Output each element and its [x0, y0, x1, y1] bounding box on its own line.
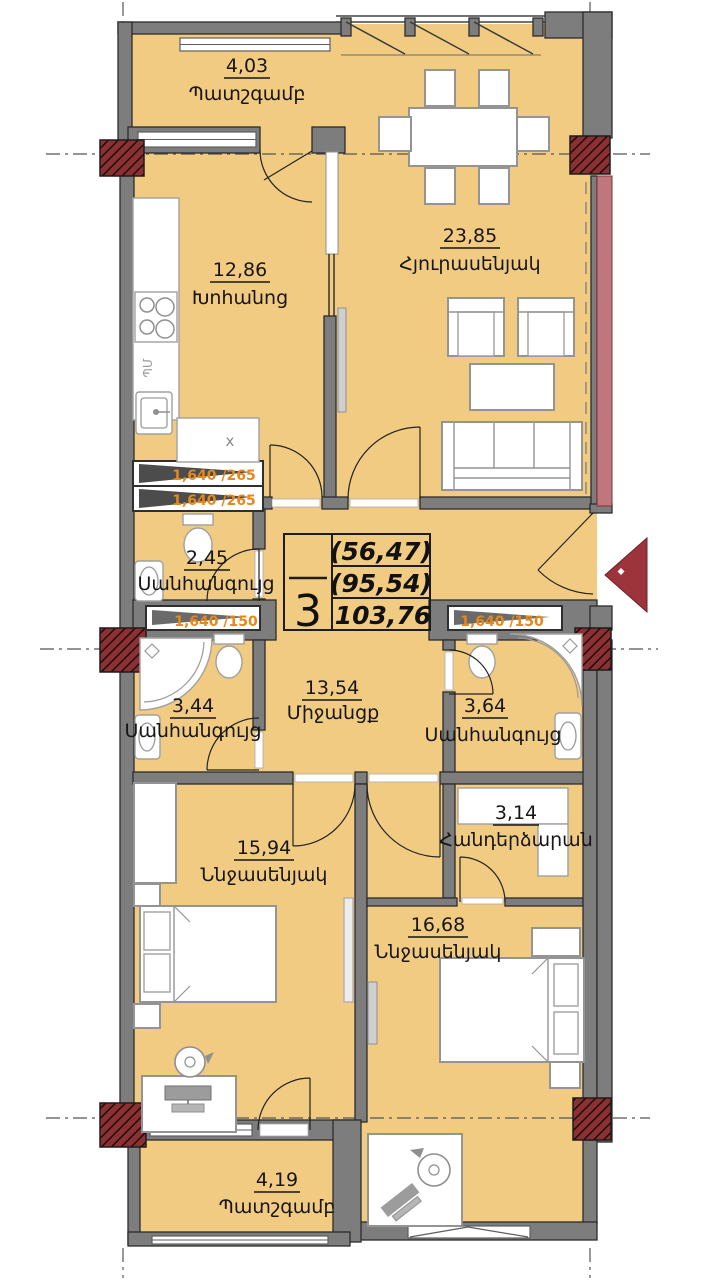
label-balcony-top-name: Պատշգամբ	[189, 83, 306, 105]
window-balcony-top	[180, 38, 330, 51]
label-bath-right-area: 3,64	[464, 695, 506, 717]
label-living-name: Հյուրասենյակ	[399, 253, 540, 275]
unit-area-net: (95,54)	[330, 569, 432, 598]
nightstand	[532, 928, 580, 956]
unit-rooms-count: 3	[294, 586, 322, 637]
chair-icon	[479, 70, 509, 106]
label-corridor-name: Միջանցք	[287, 702, 379, 724]
label-corridor-area: 13,54	[305, 677, 359, 699]
duct-label: 1,640 /150	[460, 614, 544, 630]
floor-plan-page: 3 (56,47) (95,54) 103,76 4,03 Պատշգամբ 2…	[0, 0, 720, 1280]
label-bedroom-right-area: 16,68	[411, 914, 465, 936]
label-dressing-name: Հանդերձարան	[439, 829, 592, 851]
sliding-door-panel	[344, 898, 353, 1002]
label-living-area: 23,85	[443, 225, 497, 247]
double-bed-icon	[440, 958, 584, 1062]
sliding-door-panel	[338, 308, 346, 412]
label-balcony-top-area: 4,03	[226, 55, 268, 77]
window-kitchen-balcony	[138, 132, 256, 147]
toilet-icon	[214, 634, 244, 678]
column-icon	[100, 1103, 146, 1147]
duct-label: 1,640 /265	[172, 493, 256, 509]
party-wall-strip	[597, 176, 612, 506]
sofa-icon	[442, 422, 582, 490]
kitchen-sink-icon	[136, 392, 172, 434]
column-icon	[570, 136, 610, 174]
wardrobe	[134, 783, 176, 883]
label-bedroom-left-area: 15,94	[237, 837, 291, 859]
window-bedroom-right	[408, 1226, 530, 1238]
unit-area-total: 103,76	[335, 601, 431, 630]
nightstand	[550, 1062, 580, 1088]
nightstand	[134, 884, 160, 906]
double-bed-icon	[140, 906, 276, 1002]
label-balcony-bottom-area: 4,19	[256, 1169, 298, 1191]
label-balcony-bottom-name: Պատշգամբ	[219, 1196, 336, 1218]
label-wc-name: Սանհանգույց	[137, 573, 274, 595]
column-icon	[100, 140, 144, 176]
dining-table	[409, 108, 517, 166]
chair-icon	[425, 70, 455, 106]
unit-area-living: (56,47)	[330, 537, 432, 566]
label-wc-area: 2,45	[186, 547, 228, 569]
column-icon	[100, 628, 146, 672]
coffee-table	[470, 364, 554, 410]
label-bath-left-name: Սանհանգույց	[124, 720, 261, 742]
chair-icon	[479, 168, 509, 204]
sliding-door-panel	[368, 982, 377, 1044]
nightstand	[134, 1004, 160, 1028]
kitchen-appliance-mark: ՊՄ	[141, 358, 155, 378]
window-balcony-bottom	[152, 1236, 328, 1244]
chair-icon	[425, 168, 455, 204]
kitchen-appliance-box	[177, 418, 259, 462]
duct-label: 1,640 /150	[174, 614, 258, 630]
chair-icon	[517, 117, 549, 151]
entrance-arrow-icon	[605, 538, 647, 612]
label-kitchen-name: Խոհանոց	[192, 287, 288, 309]
label-bath-left-area: 3,44	[172, 695, 214, 717]
armchair-icon	[448, 298, 504, 356]
duct-label: 1,640 /265	[172, 468, 256, 484]
desk-icon	[368, 1134, 462, 1226]
label-dressing-area: 3,14	[495, 802, 537, 824]
chair-icon	[379, 117, 411, 151]
stove-icon	[135, 292, 177, 342]
label-bedroom-left-name: Ննջասենյակ	[201, 864, 328, 886]
label-bedroom-right-name: Ննջասենյակ	[375, 941, 502, 963]
column-icon	[573, 1098, 611, 1140]
label-bath-right-name: Սանհանգույց	[424, 724, 561, 746]
floor-plan-drawing: 3 (56,47) (95,54) 103,76 4,03 Պատշգամբ 2…	[0, 0, 720, 1280]
armchair-icon	[518, 298, 574, 356]
kitchen-counter-mark: x	[226, 432, 235, 450]
label-kitchen-area: 12,86	[213, 259, 267, 281]
